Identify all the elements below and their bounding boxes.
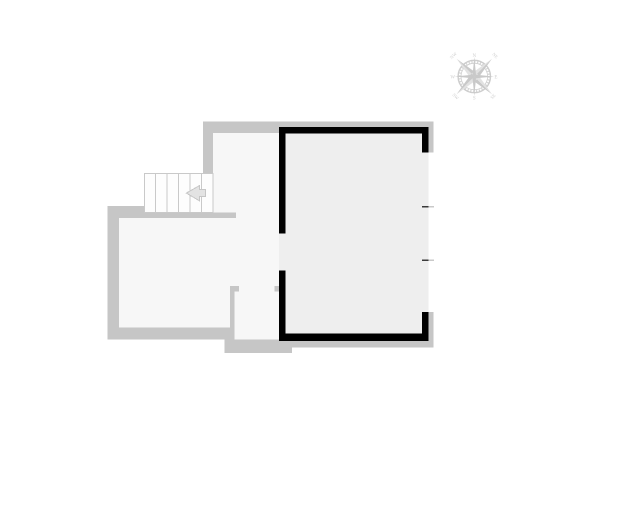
svg-text:E: E — [494, 75, 497, 80]
svg-text:S: S — [473, 97, 476, 102]
svg-text:N: N — [472, 54, 476, 59]
svg-text:W: W — [450, 75, 455, 80]
